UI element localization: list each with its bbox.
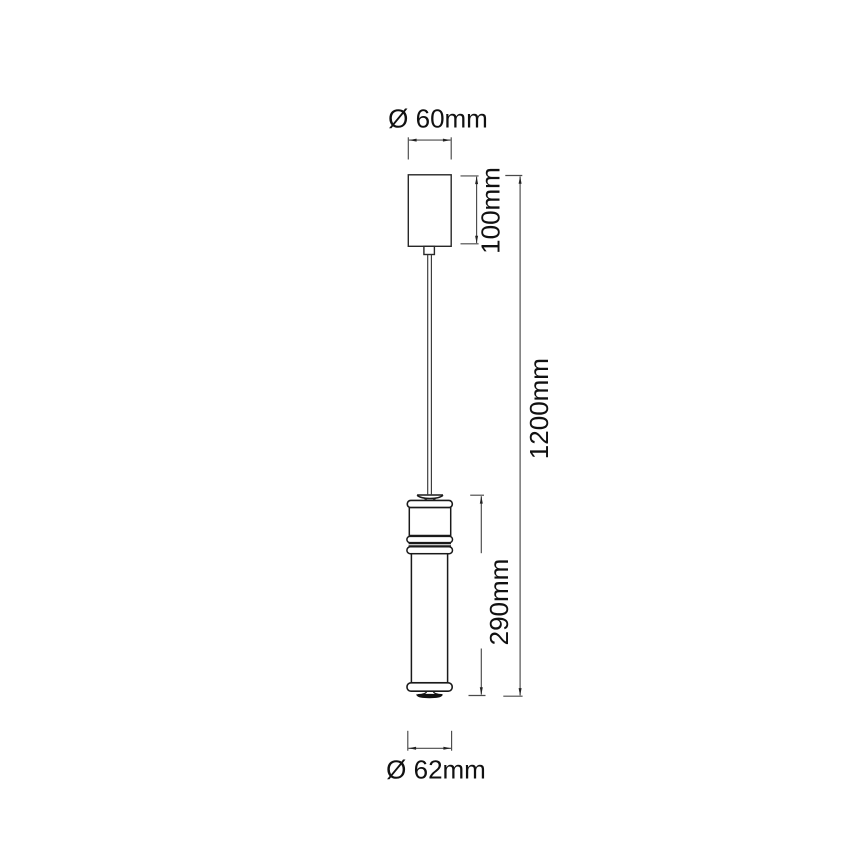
svg-text:Ø 62mm: Ø 62mm [386,755,486,785]
svg-text:290mm: 290mm [484,559,514,646]
svg-text:Ø 60mm: Ø 60mm [388,104,488,134]
svg-text:1200mm: 1200mm [524,358,554,459]
svg-text:100mm: 100mm [476,167,506,254]
